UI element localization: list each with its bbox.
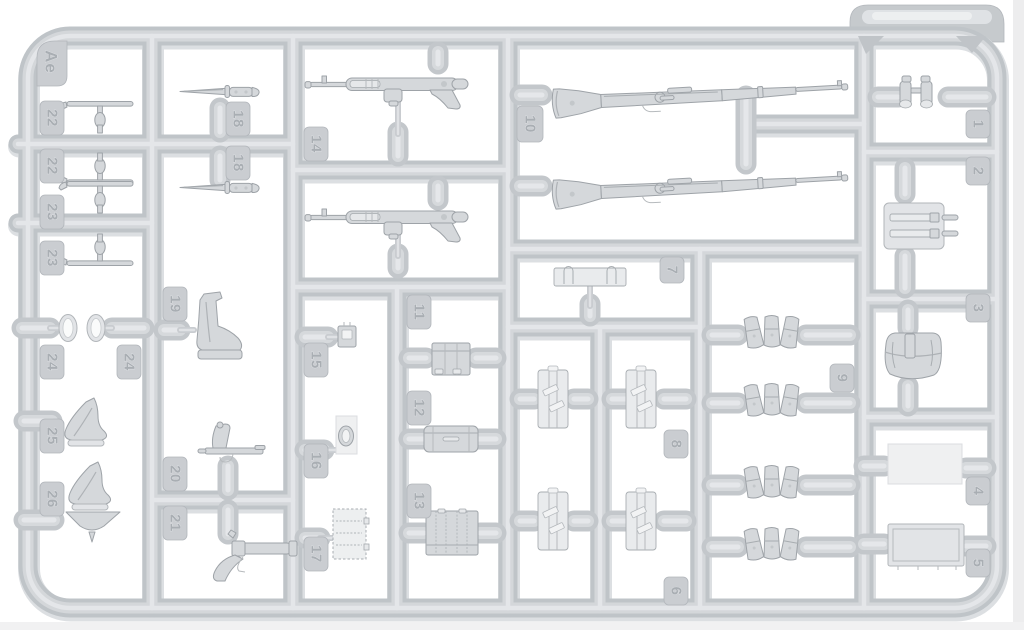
part-9-ammo-pouches xyxy=(743,465,801,499)
part-18-bayonet xyxy=(180,86,259,98)
part-8-panel xyxy=(626,366,656,428)
part-8-panel xyxy=(538,366,568,428)
svg-text:16: 16 xyxy=(308,452,325,470)
part-label-8: 8 xyxy=(664,430,688,458)
svg-text:3: 3 xyxy=(970,304,987,313)
svg-text:22: 22 xyxy=(44,157,61,175)
part-13-pouch-block-wide xyxy=(426,509,478,555)
part-label-6: 6 xyxy=(664,577,688,605)
svg-text:11: 11 xyxy=(411,304,428,321)
svg-text:25: 25 xyxy=(44,427,61,445)
part-label-19: 19 xyxy=(163,287,187,321)
svg-text:26: 26 xyxy=(44,490,61,508)
svg-text:20: 20 xyxy=(167,465,184,483)
svg-text:5: 5 xyxy=(970,559,987,568)
svg-text:13: 13 xyxy=(411,492,428,510)
part-22-t-handle xyxy=(59,102,133,134)
part-label-3: 3 xyxy=(966,294,990,322)
part-20-pistol xyxy=(198,422,265,462)
svg-text:6: 6 xyxy=(668,587,685,596)
svg-text:24: 24 xyxy=(121,353,138,371)
part-24-lens xyxy=(59,315,77,342)
svg-text:18: 18 xyxy=(230,110,247,128)
part-10-kar98k xyxy=(552,73,849,118)
scan-edge-bottom xyxy=(0,622,1024,630)
svg-text:18: 18 xyxy=(230,154,247,172)
part-6-panel xyxy=(626,488,656,550)
part-9-ammo-pouches xyxy=(743,315,801,349)
svg-text:14: 14 xyxy=(308,135,325,153)
svg-text:1: 1 xyxy=(970,120,987,129)
part-label-7: 7 xyxy=(660,257,684,283)
svg-text:19: 19 xyxy=(167,295,184,313)
svg-text:22: 22 xyxy=(44,109,61,127)
part-9-ammo-pouches xyxy=(743,527,801,561)
svg-text:17: 17 xyxy=(308,545,325,563)
svg-text:23: 23 xyxy=(44,249,61,267)
part-7-bracket xyxy=(554,267,626,286)
part-label-1: 1 xyxy=(966,110,990,138)
part-label-22: 22 xyxy=(40,101,64,135)
part-23-t-handle xyxy=(59,182,133,214)
svg-text:8: 8 xyxy=(668,440,685,449)
part-2-map-case xyxy=(884,203,958,249)
part-label-17: 17 xyxy=(304,537,328,571)
svg-text:24: 24 xyxy=(44,353,61,371)
svg-text:4: 4 xyxy=(970,487,987,496)
part-12-container xyxy=(424,426,478,452)
part-4-flat-panel xyxy=(888,444,962,484)
svg-text:23: 23 xyxy=(44,203,61,221)
part-26-holster-funnel xyxy=(66,462,120,542)
part-3-bread-bag xyxy=(885,333,942,379)
part-label-12: 12 xyxy=(407,391,431,425)
part-10-kar98k xyxy=(552,164,849,209)
part-23-t-handle xyxy=(59,234,133,266)
part-label-4: 4 xyxy=(966,477,990,505)
corner-tag: Ae xyxy=(37,41,67,86)
part-label-20: 20 xyxy=(163,457,187,491)
part-24-lens xyxy=(87,315,105,342)
part-label-11: 11 xyxy=(407,295,431,329)
part-15-buckle xyxy=(338,322,356,347)
part-label-24: 24 xyxy=(40,345,64,379)
part-label-9: 9 xyxy=(830,364,854,392)
part-label-24: 24 xyxy=(117,345,141,379)
part-label-26: 26 xyxy=(40,482,64,516)
part-label-23: 23 xyxy=(40,241,64,275)
part-19-holster-body xyxy=(197,292,242,359)
part-14-mp40 xyxy=(305,76,468,109)
part-6-panel xyxy=(538,488,568,550)
part-label-2: 2 xyxy=(966,157,990,185)
part-17-flat-plate xyxy=(333,509,369,559)
part-5-flat-panel xyxy=(888,524,964,570)
part-label-5: 5 xyxy=(966,549,990,577)
part-label-14: 14 xyxy=(304,127,328,161)
scan-edge-right xyxy=(1013,0,1024,630)
part-label-18: 18 xyxy=(226,102,250,136)
sprue-diagram: Ae xyxy=(0,0,1024,630)
part-label-23: 23 xyxy=(40,195,64,229)
part-11-pouch-block xyxy=(432,343,470,375)
part-label-16: 16 xyxy=(304,444,328,478)
part-label-15: 15 xyxy=(304,343,328,377)
part-9-ammo-pouches xyxy=(743,383,801,417)
part-16-oval-lid xyxy=(336,416,357,454)
part-label-22: 22 xyxy=(40,149,64,183)
svg-text:9: 9 xyxy=(834,374,851,383)
svg-text:7: 7 xyxy=(664,266,681,275)
part-25-holster-flap xyxy=(65,398,107,446)
part-14-mp40 xyxy=(305,209,468,242)
sprue-photo: Ae xyxy=(0,0,1024,630)
svg-text:15: 15 xyxy=(308,351,325,369)
part-1-binoculars xyxy=(900,76,933,108)
svg-text:21: 21 xyxy=(167,514,184,532)
part-label-21: 21 xyxy=(163,506,187,540)
part-label-25: 25 xyxy=(40,419,64,453)
part-label-10: 10 xyxy=(517,106,543,142)
part-label-18: 18 xyxy=(226,146,250,180)
svg-text:12: 12 xyxy=(411,399,428,417)
part-label-13: 13 xyxy=(407,484,431,518)
part-22-t-handle xyxy=(59,153,133,185)
svg-text:10: 10 xyxy=(522,115,539,133)
corner-tag-label: Ae xyxy=(42,50,61,74)
svg-text:2: 2 xyxy=(970,167,987,176)
